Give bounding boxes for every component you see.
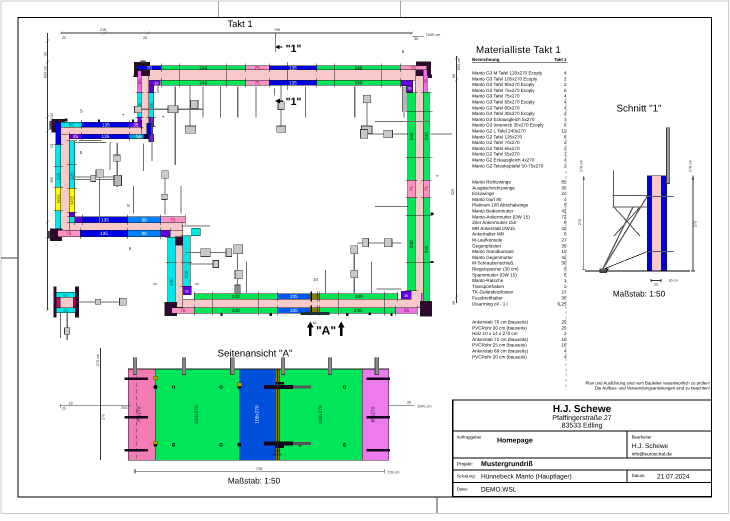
- svg-text:1045 cm: 1045 cm: [417, 405, 432, 409]
- svg-text:270: 270: [102, 414, 106, 420]
- svg-text:35: 35: [404, 294, 408, 298]
- svg-text:H.J. Schewe: H.J. Schewe: [553, 404, 612, 415]
- svg-text:30: 30: [414, 37, 418, 41]
- svg-text:4: 4: [564, 158, 567, 163]
- svg-text:Manto Bedienmutter: Manto Bedienmutter: [472, 209, 514, 214]
- svg-text:240: 240: [355, 294, 363, 299]
- svg-text:694 cm: 694 cm: [43, 66, 47, 78]
- svg-text:75: 75: [255, 66, 261, 71]
- svg-text:Manto G3 Tafel 75x270 Ecoply: Manto G3 Tafel 75x270 Ecoply: [472, 88, 535, 93]
- svg-text:240: 240: [424, 245, 429, 253]
- svg-text:20: 20: [143, 36, 147, 40]
- svg-text:Manto G3 Tafel 90x270 Ecoply: Manto G3 Tafel 90x270 Ecoply: [472, 82, 535, 87]
- svg-text:35: 35: [133, 122, 139, 127]
- svg-text:Manto Standkonsole: Manto Standkonsole: [472, 249, 514, 254]
- svg-text:105: 105: [290, 294, 298, 299]
- svg-text:H.J. Schewe: H.J. Schewe: [632, 443, 669, 450]
- svg-text:Transporthaken: Transporthaken: [472, 284, 504, 289]
- svg-text:105x270: 105x270: [255, 405, 261, 424]
- svg-text:DEMO.WSL: DEMO.WSL: [481, 487, 517, 494]
- svg-text:Die Aufbau- und Verwendungsanl: Die Aufbau- und Verwendungsanleitungen s…: [595, 385, 710, 390]
- svg-text:Manto G2 Tafel 65x270: Manto G2 Tafel 65x270: [472, 146, 520, 151]
- svg-text:8: 8: [564, 123, 567, 128]
- svg-text:276 cm: 276 cm: [96, 354, 100, 366]
- svg-text:4: 4: [564, 197, 567, 202]
- svg-text:60: 60: [63, 309, 67, 313]
- svg-text:6: 6: [564, 88, 567, 93]
- svg-text:135: 135: [101, 134, 109, 139]
- svg-text:270: 270: [693, 221, 697, 227]
- svg-text:Manto G3 M Tafel 120x270 Ecopl: Manto G3 M Tafel 120x270 Ecoply: [472, 71, 543, 76]
- svg-text:10: 10: [313, 321, 317, 325]
- svg-text:4: 4: [162, 116, 166, 118]
- svg-text:"1": "1": [286, 96, 302, 108]
- svg-text:Gegenpfosten: Gegenpfosten: [472, 243, 501, 248]
- svg-text:Ankerstab 72 cm (bauseits): Ankerstab 72 cm (bauseits): [472, 337, 528, 342]
- svg-text:Bearbeiter: Bearbeiter: [632, 435, 652, 440]
- svg-text:Manto G2 L Tafel 240x270: Manto G2 L Tafel 240x270: [472, 129, 526, 134]
- svg-text:1045 cm: 1045 cm: [426, 33, 441, 37]
- svg-text:18: 18: [68, 401, 72, 405]
- svg-text:75: 75: [66, 231, 72, 236]
- svg-text:35: 35: [73, 134, 79, 139]
- svg-text:PVCRohr 20 cm (bauseits): PVCRohr 20 cm (bauseits): [472, 354, 527, 359]
- svg-text:75: 75: [255, 81, 261, 86]
- svg-text:70: 70: [147, 66, 153, 71]
- svg-text:2: 2: [564, 284, 567, 289]
- svg-text:Hünnebeck Manto (Hauptlager): Hünnebeck Manto (Hauptlager): [481, 474, 572, 481]
- svg-text:278 cm: 278 cm: [689, 160, 693, 172]
- svg-text:MR Ankerstab DW15: MR Ankerstab DW15: [472, 226, 515, 231]
- svg-text:135: 135: [101, 217, 109, 222]
- svg-text:240x270: 240x270: [318, 405, 324, 424]
- svg-text:135: 135: [289, 66, 297, 71]
- svg-text:Schnitt "1": Schnitt "1": [616, 104, 662, 115]
- svg-text:2: 2: [564, 163, 567, 168]
- svg-text:6,25: 6,25: [558, 301, 567, 306]
- svg-text:83533 Edling: 83533 Edling: [562, 422, 603, 430]
- svg-text:Pfaffingerstraße 27: Pfaffingerstraße 27: [552, 414, 612, 422]
- svg-text:4: 4: [564, 94, 567, 99]
- svg-text:Projekt:: Projekt:: [457, 462, 473, 468]
- svg-text:130: 130: [169, 278, 174, 286]
- svg-text:30: 30: [452, 74, 456, 78]
- svg-text:355: 355: [50, 177, 54, 183]
- svg-text:2: 2: [564, 82, 567, 87]
- svg-text:35: 35: [185, 290, 189, 294]
- svg-text:Manto G3 Tafel 60x270 Ecoply: Manto G3 Tafel 60x270 Ecoply: [472, 100, 535, 105]
- svg-text:Manto G2 Tafel 55x270: Manto G2 Tafel 55x270: [472, 152, 520, 157]
- svg-text:Manto-Ankermutter (DW 15): Manto-Ankermutter (DW 15): [472, 214, 530, 219]
- svg-text:Manto G3 Eckausgleich 5x270: Manto G3 Eckausgleich 5x270: [472, 117, 535, 122]
- svg-text:1: 1: [564, 278, 567, 283]
- svg-text:30: 30: [452, 301, 456, 305]
- svg-text:Spannmutter (DW 15): Spannmutter (DW 15): [472, 272, 517, 277]
- svg-text:30 cm: 30 cm: [669, 278, 679, 282]
- svg-text:8: 8: [564, 220, 567, 225]
- svg-text:240: 240: [409, 132, 414, 140]
- svg-text:Riegelspanner (30 cm): Riegelspanner (30 cm): [472, 267, 519, 272]
- svg-text:PVCRohr 30 cm (bauseits): PVCRohr 30 cm (bauseits): [472, 325, 527, 330]
- svg-text:M-Laufkonsole: M-Laufkonsole: [472, 238, 503, 243]
- svg-text:90: 90: [149, 102, 154, 108]
- svg-text:Eckzwinge: Eckzwinge: [472, 191, 494, 196]
- svg-text:Manto Gegenmutter: Manto Gegenmutter: [472, 255, 513, 260]
- svg-text:25: 25: [62, 407, 66, 411]
- svg-text:20er Ankermutter 150: 20er Ankermutter 150: [472, 220, 517, 225]
- svg-text:135: 135: [100, 231, 108, 236]
- svg-text:Holz 10 x 14 x 270 cm: Holz 10 x 14 x 270 cm: [472, 331, 518, 336]
- svg-text:6: 6: [564, 134, 567, 139]
- svg-text:Manto G3 Tafel 105x270 Ecoply: Manto G3 Tafel 105x270 Ecoply: [472, 76, 538, 81]
- svg-text:4: 4: [435, 175, 439, 177]
- svg-text:75: 75: [180, 308, 186, 313]
- svg-text:3: 3: [564, 140, 567, 145]
- svg-text:130: 130: [184, 270, 189, 278]
- svg-text:Auftraggeber: Auftraggeber: [457, 435, 482, 440]
- svg-text:"A": "A": [316, 324, 336, 338]
- svg-text:Manto G3 Tafel 60x270: Manto G3 Tafel 60x270: [472, 105, 520, 110]
- svg-text:Takt 1: Takt 1: [227, 19, 252, 30]
- svg-text:270: 270: [578, 219, 582, 225]
- svg-text:Ankerstab 69 cm (bauseits): Ankerstab 69 cm (bauseits): [472, 349, 528, 354]
- svg-text:8: 8: [564, 232, 567, 237]
- svg-text:21.07.2024: 21.07.2024: [657, 474, 690, 481]
- svg-text:Datei:: Datei:: [457, 487, 468, 492]
- svg-text:135: 135: [102, 122, 110, 127]
- svg-text:Manto G3 Inneneck 35x270 Ecop: Manto G3 Inneneck 35x270 Ecoply: [472, 123, 544, 128]
- svg-text:134: 134: [50, 113, 54, 119]
- svg-text:35: 35: [408, 87, 412, 91]
- svg-text:10x270: 10x270: [272, 453, 282, 457]
- svg-text:Disarming oil - 1 l: Disarming oil - 1 l: [472, 301, 507, 306]
- svg-text:240: 240: [199, 81, 207, 86]
- svg-text:240: 240: [199, 66, 207, 71]
- svg-text:4: 4: [122, 114, 126, 116]
- svg-text:60: 60: [69, 122, 75, 127]
- svg-text:M-Schraubenschluß: M-Schraubenschluß: [472, 261, 513, 266]
- svg-text:65: 65: [404, 308, 410, 313]
- svg-text:6: 6: [564, 203, 567, 208]
- svg-text:75: 75: [409, 186, 414, 192]
- svg-text:2: 2: [564, 331, 567, 336]
- svg-text:30: 30: [654, 282, 658, 286]
- svg-text:20: 20: [50, 144, 54, 148]
- svg-text:728 cm: 728 cm: [387, 471, 399, 475]
- svg-text:55: 55: [136, 134, 142, 139]
- svg-text:4: 4: [564, 349, 567, 354]
- svg-text:90: 90: [142, 231, 148, 236]
- svg-text:M65: M65: [70, 195, 75, 205]
- svg-text:info@euroschal.de: info@euroschal.de: [632, 452, 672, 458]
- svg-text:Manto G3 Tafel 30x270 Ecoply: Manto G3 Tafel 30x270 Ecoply: [472, 111, 535, 116]
- svg-text:75: 75: [411, 66, 417, 71]
- svg-text:Ankerhalter MR: Ankerhalter MR: [472, 232, 505, 237]
- svg-text:240x270: 240x270: [194, 405, 200, 424]
- svg-text:Manto Gurt 80: Manto Gurt 80: [472, 197, 502, 202]
- svg-text:30: 30: [407, 401, 411, 405]
- svg-text:4: 4: [564, 100, 567, 105]
- svg-text:TK-Geländerpfosten: TK-Geländerpfosten: [472, 290, 514, 295]
- svg-text:90: 90: [142, 217, 148, 222]
- svg-text:M65: M65: [56, 194, 61, 204]
- svg-text:3: 3: [564, 146, 567, 151]
- svg-text:Fussbretthalter: Fussbretthalter: [472, 296, 503, 301]
- svg-text:Ankerstab 76 cm (bauseits): Ankerstab 76 cm (bauseits): [472, 320, 528, 325]
- svg-text:Manto G2 Teleskoptafel 50-75x: Manto G2 Teleskoptafel 50-75x270: [472, 163, 544, 168]
- svg-text:4: 4: [564, 105, 567, 110]
- svg-text:"1": "1": [286, 43, 302, 55]
- svg-text:120: 120: [56, 172, 61, 180]
- svg-text:65x270: 65x270: [371, 406, 377, 422]
- svg-text:Bezeichnung: Bezeichnung: [472, 57, 500, 62]
- svg-text:240: 240: [354, 66, 362, 71]
- svg-text:Homepage: Homepage: [497, 438, 533, 445]
- svg-text:Takt 1: Takt 1: [554, 57, 567, 62]
- svg-text:218: 218: [100, 28, 106, 32]
- svg-text:4: 4: [564, 71, 567, 76]
- svg-text:120: 120: [70, 172, 75, 180]
- svg-text:30: 30: [43, 52, 47, 56]
- svg-text:7: 7: [564, 117, 567, 122]
- svg-text:8: 8: [564, 267, 567, 272]
- svg-text:65: 65: [423, 79, 427, 83]
- svg-text:629: 629: [451, 189, 455, 195]
- svg-text:75: 75: [424, 186, 429, 192]
- svg-text:Maßstab: 1:50: Maßstab: 1:50: [613, 290, 666, 299]
- svg-text:60: 60: [63, 294, 67, 298]
- svg-text:240: 240: [232, 294, 240, 299]
- svg-text:Ausgleichrichtzwinge: Ausgleichrichtzwinge: [472, 185, 515, 190]
- svg-text:240: 240: [354, 308, 362, 313]
- svg-text:240: 240: [355, 81, 363, 86]
- svg-text:728: 728: [256, 467, 262, 471]
- svg-text:35: 35: [154, 81, 158, 85]
- svg-text:Materialliste Takt 1: Materialliste Takt 1: [476, 45, 561, 56]
- svg-text:278 cm: 278 cm: [580, 160, 584, 172]
- svg-text:2: 2: [564, 111, 567, 116]
- svg-text:2: 2: [564, 76, 567, 81]
- svg-text:75: 75: [170, 217, 176, 222]
- svg-text:Maßstab: 1:50: Maßstab: 1:50: [228, 477, 281, 486]
- svg-text:135: 135: [289, 81, 297, 86]
- svg-text:355: 355: [121, 406, 127, 410]
- svg-text:4: 4: [564, 354, 567, 359]
- svg-text:Manto G3 Tafel 75x270: Manto G3 Tafel 75x270: [472, 94, 520, 99]
- svg-text:75x270: 75x270: [137, 406, 143, 422]
- svg-text:8: 8: [564, 272, 567, 277]
- svg-text:105: 105: [290, 308, 298, 313]
- svg-text:240: 240: [232, 308, 240, 313]
- svg-text:65: 65: [137, 79, 142, 85]
- svg-text:25: 25: [62, 36, 66, 40]
- svg-text:240: 240: [409, 240, 414, 248]
- svg-text:10: 10: [313, 277, 318, 282]
- svg-text:Manto G2 Tafel 135x270: Manto G2 Tafel 135x270: [472, 134, 522, 139]
- svg-text:1: 1: [564, 152, 567, 157]
- svg-text:694 cm: 694 cm: [457, 58, 461, 70]
- svg-text:Manto-Ratsche: Manto-Ratsche: [472, 278, 504, 283]
- svg-text:Schalung:: Schalung:: [457, 474, 476, 479]
- svg-text:Datum:: Datum:: [632, 473, 646, 478]
- svg-text:Platinum 100 Abschalwinge: Platinum 100 Abschalwinge: [472, 203, 529, 208]
- svg-text:Mustergrundriß: Mustergrundriß: [481, 460, 533, 468]
- svg-text:240: 240: [424, 132, 429, 140]
- svg-text:Manto G2 Eckausgleich 4x270: Manto G2 Eckausgleich 4x270: [472, 158, 535, 163]
- svg-text:PVCRohr 25 cm (bauseits): PVCRohr 25 cm (bauseits): [472, 343, 527, 348]
- svg-text:Manto Richtzwinge: Manto Richtzwinge: [472, 180, 511, 185]
- svg-text:760: 760: [274, 28, 280, 32]
- svg-text:Manto G2 Tafel 70x270: Manto G2 Tafel 70x270: [472, 140, 520, 145]
